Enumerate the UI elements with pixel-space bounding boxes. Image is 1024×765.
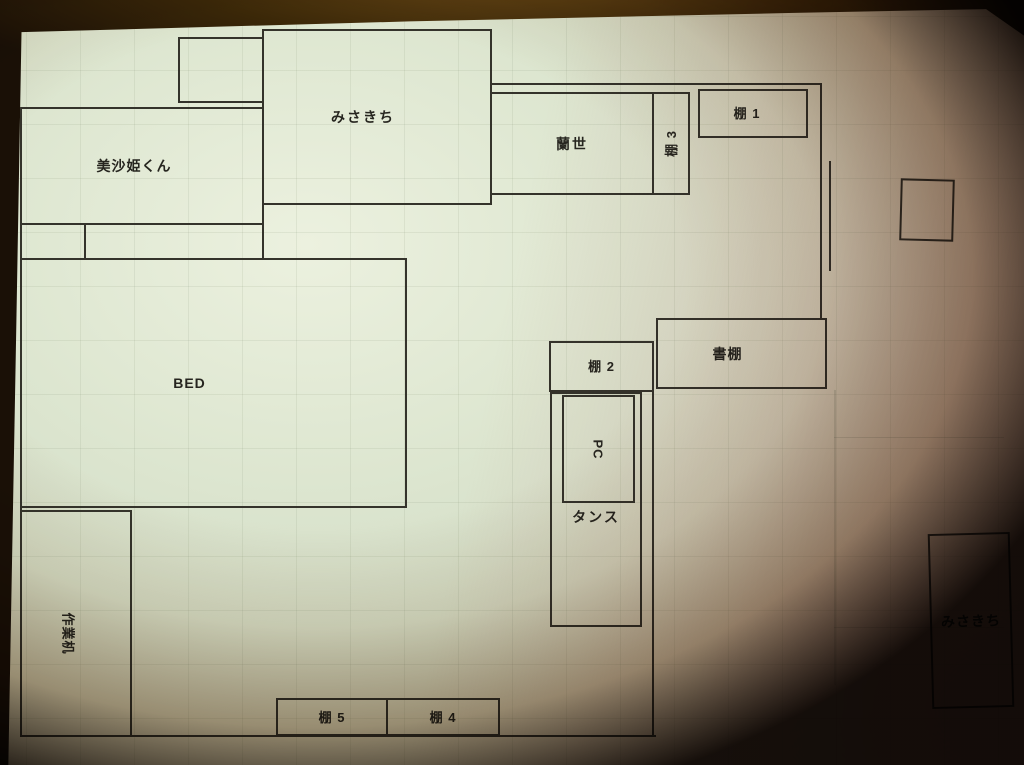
wall-corridor — [652, 392, 654, 737]
small-square-box — [899, 178, 955, 241]
shelf-2-box: 棚 2 — [549, 341, 654, 392]
pc-box: PC — [562, 395, 635, 503]
misakichi-bottom-label: みさきち — [941, 613, 1001, 629]
shelf-4-label: 棚 4 — [430, 711, 457, 724]
wall-top-right — [490, 83, 822, 85]
ghost-line-horizontal — [834, 437, 1004, 438]
tansu-label: タンス — [552, 510, 640, 524]
bookshelf-label: 書棚 — [713, 347, 743, 361]
bookshelf-box: 書棚 — [656, 318, 827, 389]
misakichi-top-label: みさきち — [331, 110, 395, 124]
shelf-1-box: 棚 1 — [698, 89, 808, 138]
photo-of-floorplan: みさきち 美沙姫くん 蘭世 棚 3 棚 1 BED 棚 2 書棚 タンス — [0, 0, 1024, 765]
bed-label: BED — [173, 376, 206, 390]
misakihime-label: 美沙姫くん — [97, 159, 172, 173]
shelf-3-label: 棚 3 — [665, 130, 678, 157]
band-divider — [84, 223, 86, 260]
small-closet-box — [178, 37, 264, 103]
misakihime-box: 美沙姫くん — [20, 107, 264, 225]
shelf-5-box: 棚 5 — [276, 698, 388, 736]
shelf-5-label: 棚 5 — [319, 711, 346, 724]
shelf-4-box: 棚 4 — [386, 698, 500, 736]
ghost-line-vertical — [834, 390, 836, 685]
work-desk-box: 作業机 — [20, 510, 132, 737]
paper-sheet: みさきち 美沙姫くん 蘭世 棚 3 棚 1 BED 棚 2 書棚 タンス — [0, 0, 1024, 765]
bed-box: BED — [20, 258, 407, 508]
shelf-2-label: 棚 2 — [588, 360, 615, 373]
misakichi-bottom-box: みさきち — [928, 532, 1015, 709]
wall-right — [820, 83, 822, 320]
shelf-3-box: 棚 3 — [652, 92, 690, 195]
under-closet-band — [20, 223, 264, 260]
pc-label: PC — [592, 439, 605, 459]
work-desk-label: 作業机 — [61, 612, 74, 654]
door-line — [829, 161, 831, 271]
shelf-1-label: 棚 1 — [734, 107, 761, 120]
ranze-box: 蘭世 — [490, 92, 654, 195]
misakichi-top-box: みさきち — [262, 29, 492, 205]
ranze-label: 蘭世 — [556, 137, 588, 151]
